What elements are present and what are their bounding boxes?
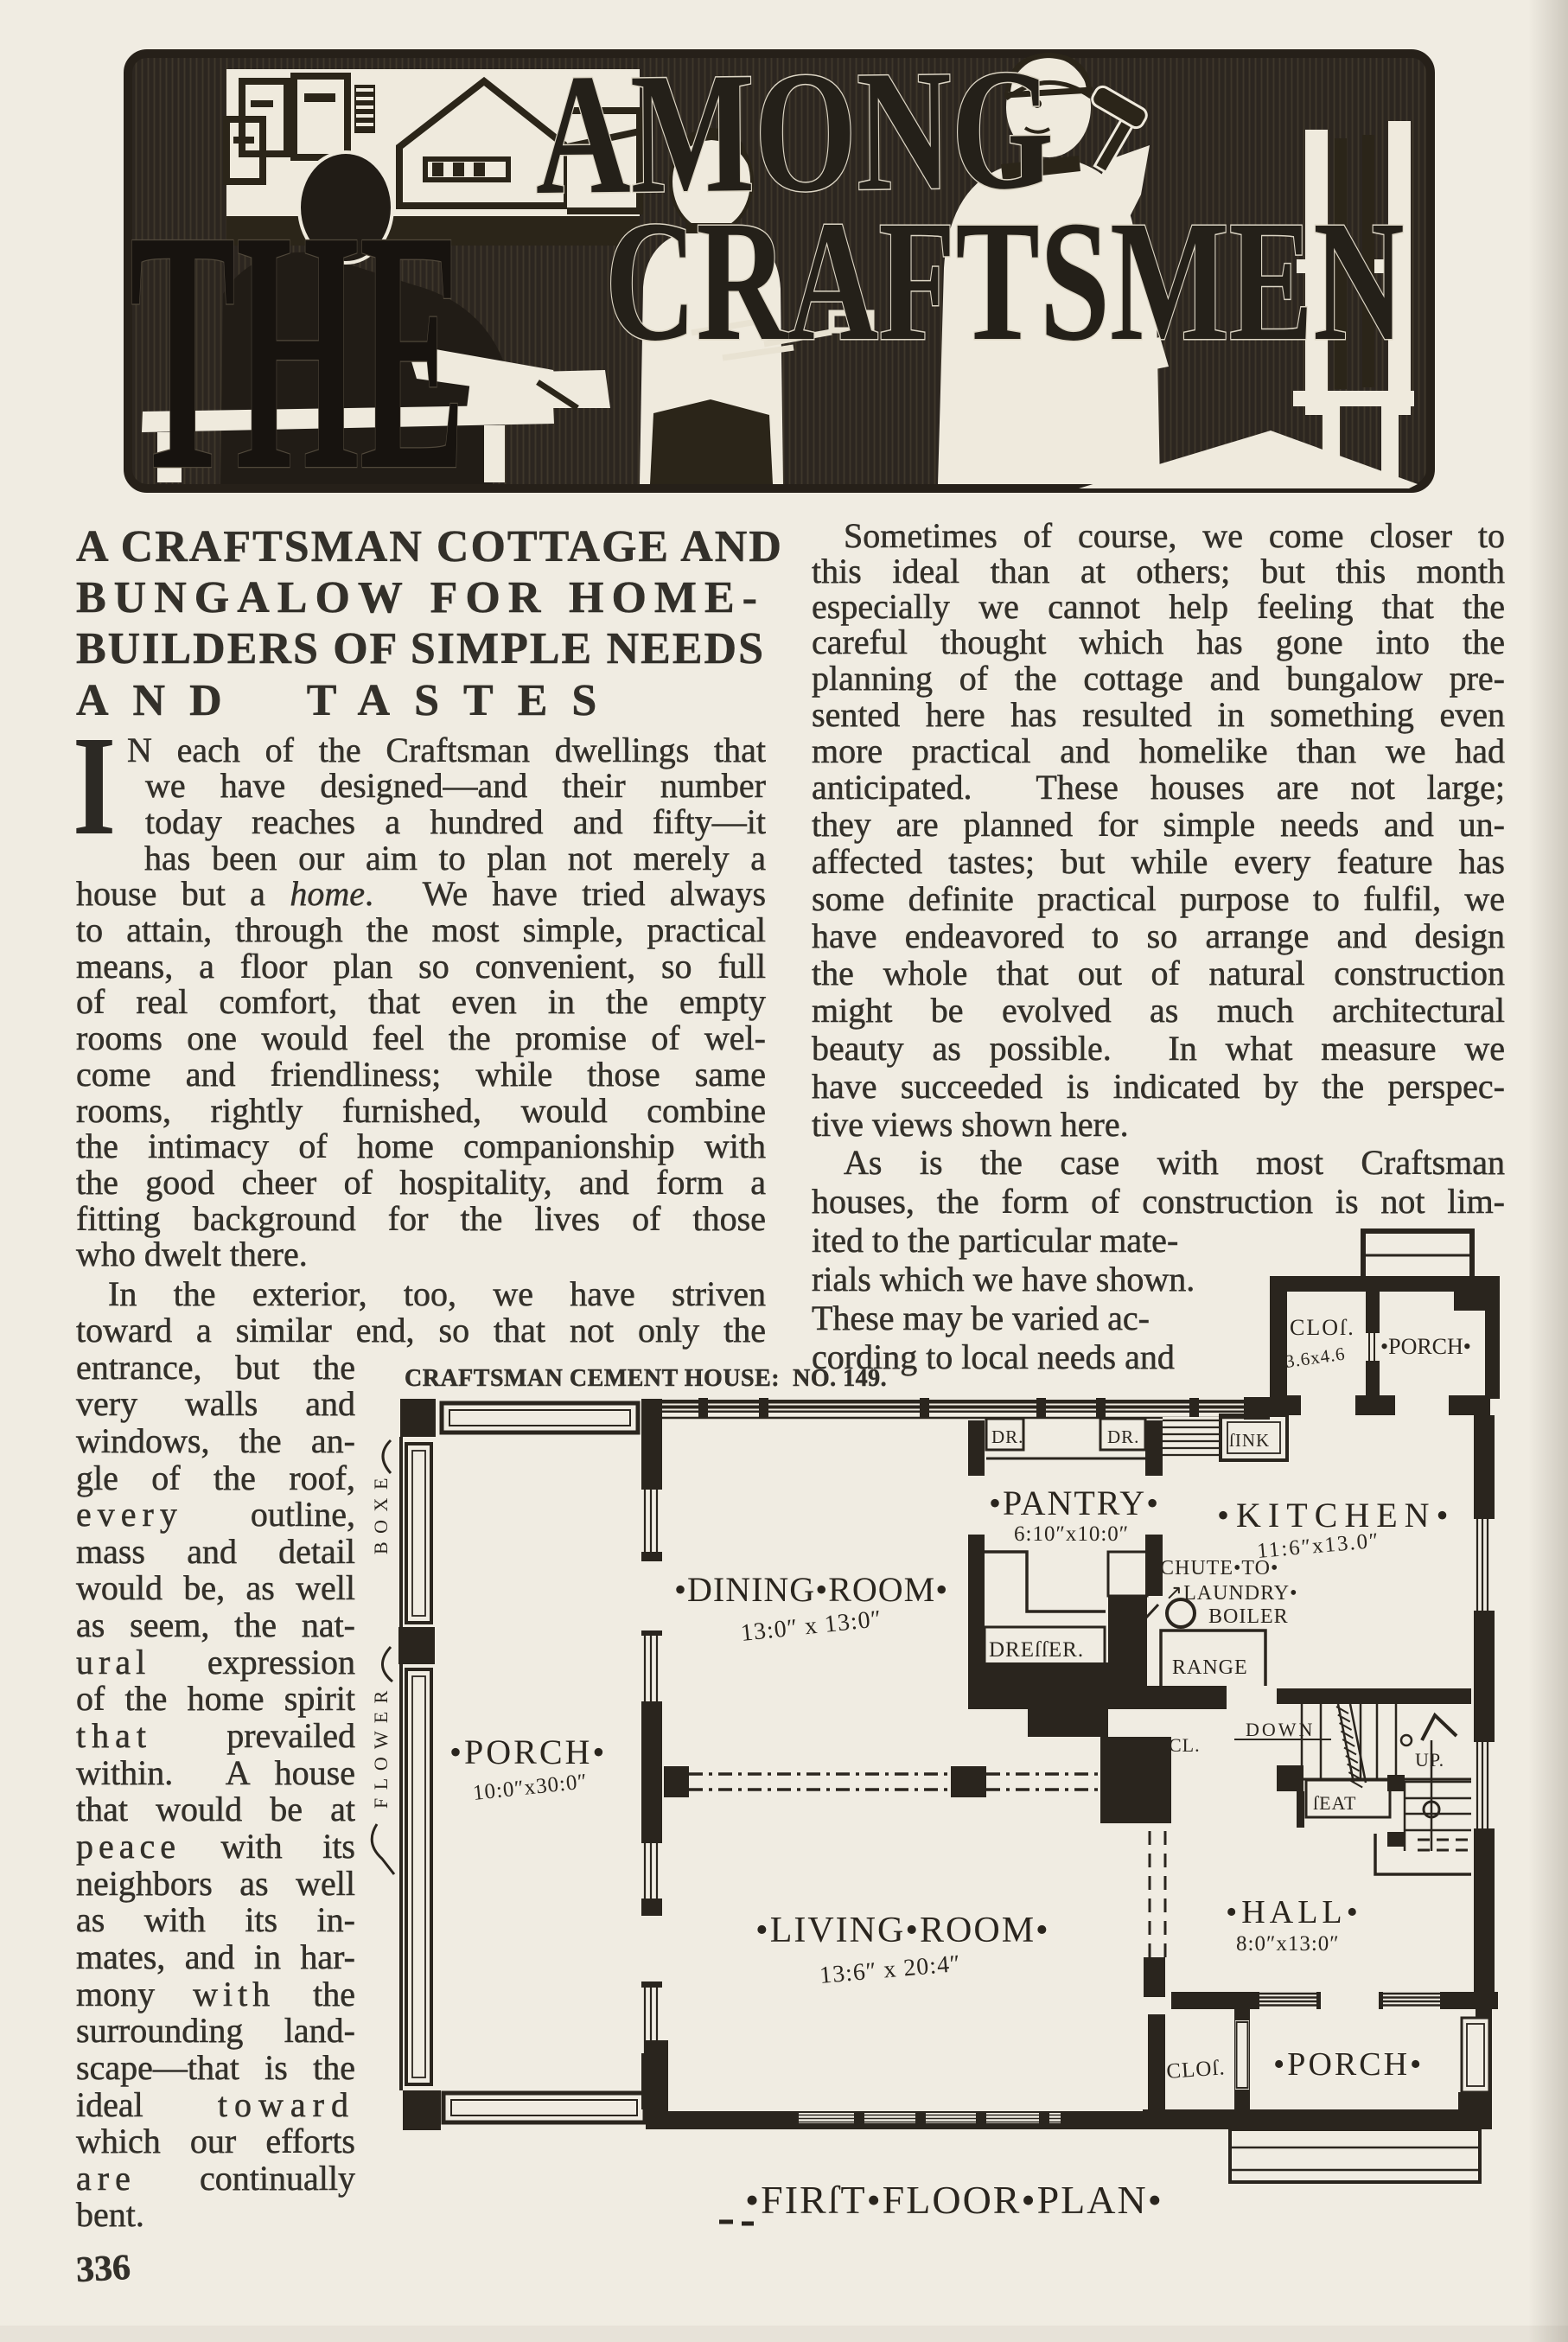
svg-text:•PANTRY•: •PANTRY•	[989, 1484, 1160, 1522]
svg-text:CLOſ.: CLOſ.	[1290, 1315, 1355, 1340]
svg-text:CLOſ.: CLOſ.	[1166, 2056, 1227, 2084]
svg-text:THE: THE	[130, 160, 466, 542]
svg-text:CL.: CL.	[1169, 1734, 1201, 1756]
svg-text:13:0″ x 13:0″: 13:0″ x 13:0″	[739, 1605, 883, 1647]
svg-text:DOWN: DOWN	[1246, 1719, 1315, 1740]
svg-text:8:0″x13:0″: 8:0″x13:0″	[1236, 1932, 1340, 1956]
svg-text:•PORCH•: •PORCH•	[1380, 1334, 1471, 1359]
svg-text:•PORCH•: •PORCH•	[1273, 2046, 1424, 2083]
svg-text:RANGE: RANGE	[1172, 1656, 1248, 1679]
svg-text:BOILER: BOILER	[1208, 1605, 1289, 1628]
svg-text:ſEAT: ſEAT	[1313, 1792, 1356, 1814]
svg-text:•HALL•: •HALL•	[1226, 1894, 1362, 1930]
svg-text:F L O W E R: F L O W E R	[370, 1689, 392, 1809]
svg-text:•LIVING•ROOM•: •LIVING•ROOM•	[755, 1911, 1050, 1950]
svg-text:CHUTE•TO•: CHUTE•TO•	[1160, 1557, 1278, 1579]
svg-text:13:6″ x 20:4″: 13:6″ x 20:4″	[819, 1950, 962, 1989]
svg-text:B O X E: B O X E	[370, 1477, 392, 1554]
svg-text:DR.: DR.	[991, 1426, 1023, 1447]
svg-text:•KITCHEN•: •KITCHEN•	[1217, 1496, 1456, 1535]
svg-text:•PORCH•: •PORCH•	[449, 1733, 607, 1771]
svg-text:DREſſER.: DREſſER.	[989, 1638, 1084, 1662]
svg-text:CRAFTSMEN: CRAFTSMEN	[605, 185, 1405, 377]
svg-text:10:0″x30:0″: 10:0″x30:0″	[472, 1770, 589, 1805]
svg-text:•DINING•ROOM•: •DINING•ROOM•	[674, 1570, 948, 1609]
svg-text:•FIRſT•FLOOR•PLAN•: •FIRſT•FLOOR•PLAN•	[745, 2178, 1163, 2222]
svg-text:UP.: UP.	[1415, 1749, 1444, 1771]
svg-text:6:10″x10:0″: 6:10″x10:0″	[1014, 1522, 1129, 1546]
svg-text:ſINK: ſINK	[1229, 1430, 1270, 1451]
svg-text:DR.: DR.	[1107, 1426, 1139, 1447]
svg-text:3.6x4.6: 3.6x4.6	[1284, 1343, 1347, 1372]
